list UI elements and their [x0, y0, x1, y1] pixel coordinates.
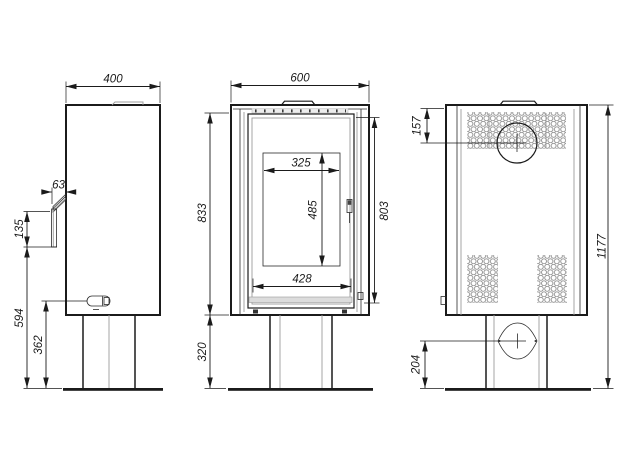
- dim-label-intake-height: 204: [411, 355, 423, 375]
- perforation-panel-top: [467, 112, 566, 149]
- perforation-panel-right: [537, 255, 567, 303]
- floor-line-side: [63, 388, 163, 391]
- handle-strip-line: [53, 197, 66, 209]
- side-body: [66, 105, 160, 315]
- dim-handle-height: 135: [14, 212, 50, 248]
- front-view: 600 833 320 803 325 485: [197, 73, 391, 391]
- dim-label-glass-width: 325: [291, 158, 311, 170]
- dim-label-door-height: 803: [379, 201, 391, 221]
- door-bottom-grate: [249, 297, 352, 303]
- dim-label-base-height: 320: [197, 342, 209, 362]
- door-latch-pin: [348, 200, 351, 205]
- side-pedestal: [83, 315, 135, 388]
- dim-label-knob-to-floor: 362: [33, 335, 45, 355]
- dim-label-flue-offset: 157: [412, 116, 424, 136]
- dim-handle-to-floor: 594: [14, 247, 62, 389]
- front-pedestal: [270, 315, 332, 388]
- door-handle-side: [52, 195, 66, 248]
- floor-line-front: [228, 388, 373, 391]
- door-foot: [342, 310, 347, 314]
- side-view: 400 63 135 594 362: [14, 74, 163, 391]
- dim-body-height: 833: [197, 113, 229, 315]
- dim-label-overall-height: 1177: [597, 234, 609, 259]
- dim-front-width: 600: [231, 73, 369, 103]
- dim-label-front-width: 600: [290, 73, 310, 85]
- dim-base-height: 320: [197, 315, 226, 389]
- dim-overall-height: 1177: [589, 105, 614, 389]
- perforation-panel-left: [467, 255, 498, 303]
- rear-pedestal: [486, 315, 547, 388]
- dim-side-width: 400: [66, 74, 160, 104]
- door-foot: [253, 310, 258, 314]
- dim-label-opening-width: 428: [292, 274, 312, 286]
- stove-technical-drawing: 400 63 135 594 362: [0, 0, 624, 460]
- dim-label-glass-height: 485: [308, 200, 320, 220]
- intake-vertex-dot: [535, 340, 537, 342]
- dim-label-side-width: 400: [103, 74, 123, 86]
- dim-label-handle-to-floor: 594: [14, 308, 26, 327]
- rear-view: 157 204 1177: [411, 101, 614, 391]
- dim-label-body-height: 833: [197, 203, 209, 223]
- handle-bar: [52, 209, 57, 247]
- dim-intake-height: 204: [411, 341, 527, 389]
- dim-label-handle-height: 135: [14, 219, 26, 239]
- floor-line-rear: [445, 388, 591, 391]
- dim-label-handle-depth: 63: [52, 180, 65, 192]
- drawing-canvas: 400 63 135 594 362: [0, 0, 624, 460]
